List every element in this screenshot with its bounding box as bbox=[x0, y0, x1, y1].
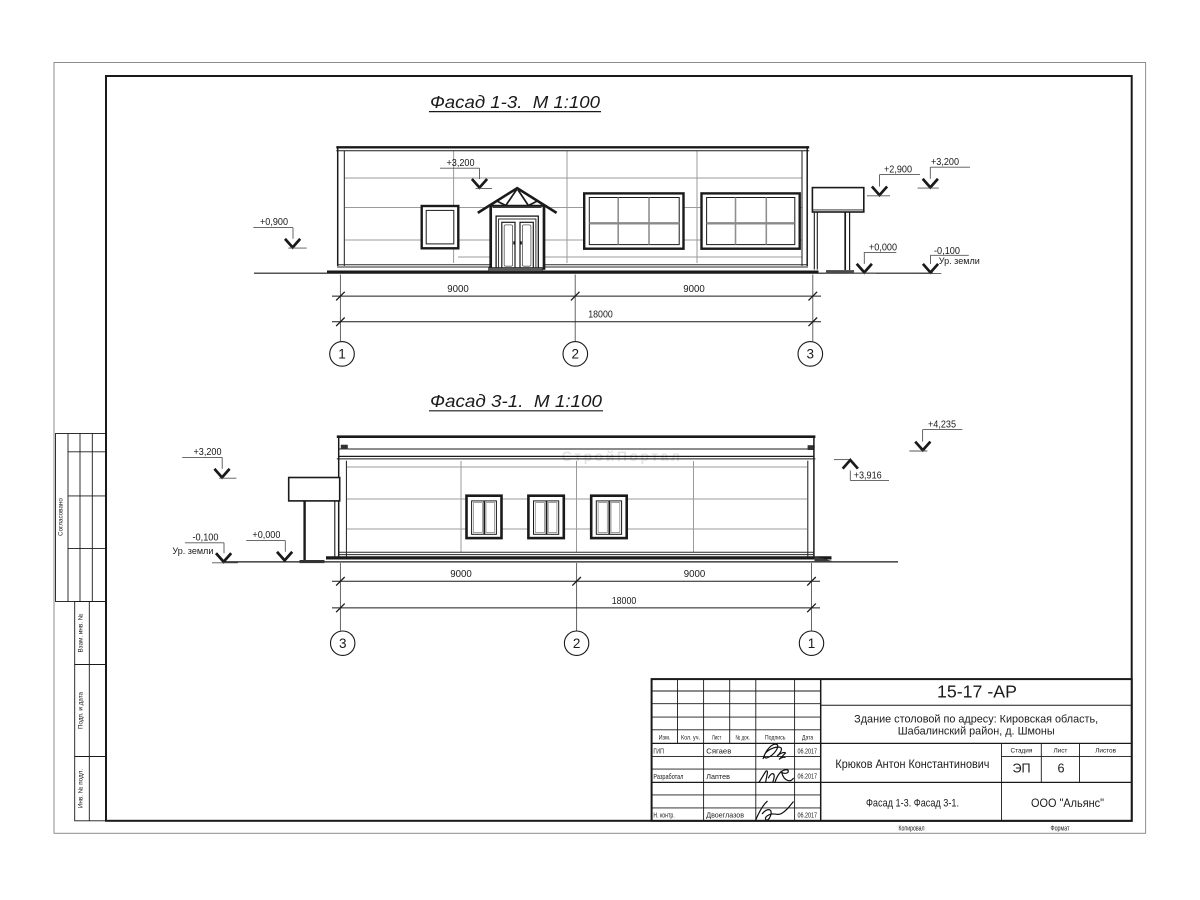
svg-text:9000: 9000 bbox=[450, 569, 472, 580]
svg-text:Фасад 1-3. М 1:100: Фасад 1-3. М 1:100 bbox=[430, 92, 600, 112]
svg-text:15-17 -АР: 15-17 -АР bbox=[937, 682, 1017, 702]
svg-text:Копировал: Копировал bbox=[899, 825, 925, 832]
svg-text:Дата: Дата bbox=[802, 735, 813, 742]
svg-text:3: 3 bbox=[339, 636, 347, 651]
svg-text:№ док.: № док. bbox=[736, 735, 750, 742]
svg-text:ООО "Альянс": ООО "Альянс" bbox=[1031, 796, 1104, 810]
svg-text:2: 2 bbox=[572, 347, 580, 362]
svg-text:1: 1 bbox=[338, 347, 346, 362]
svg-text:Двоеглазов: Двоеглазов bbox=[706, 811, 744, 820]
svg-text:Изм.: Изм. bbox=[659, 735, 671, 742]
svg-text:Разработал: Разработал bbox=[653, 772, 683, 781]
svg-text:Взам. инв. №: Взам. инв. № bbox=[78, 613, 85, 652]
svg-text:-0,100: -0,100 bbox=[193, 533, 219, 544]
svg-text:Листов: Листов bbox=[1095, 748, 1116, 755]
svg-text:Шабалинский район, д. Шмоны: Шабалинский район, д. Шмоны bbox=[898, 725, 1055, 737]
svg-text:Фасад 3-1. М 1:100: Фасад 3-1. М 1:100 bbox=[430, 391, 602, 411]
svg-text:+0,000: +0,000 bbox=[252, 530, 280, 541]
svg-text:Лаптев: Лаптев bbox=[706, 772, 730, 781]
svg-text:+3,200: +3,200 bbox=[931, 157, 959, 168]
svg-text:Лист: Лист bbox=[1053, 748, 1067, 755]
svg-text:Подп. и дата: Подп. и дата bbox=[78, 691, 85, 729]
svg-text:ЭП: ЭП bbox=[1012, 762, 1030, 776]
svg-text:9000: 9000 bbox=[447, 284, 469, 295]
svg-text:+3,200: +3,200 bbox=[194, 447, 222, 458]
svg-text:ГИП: ГИП bbox=[653, 747, 664, 756]
svg-text:+0,900: +0,900 bbox=[260, 217, 288, 228]
svg-text:+3,200: +3,200 bbox=[447, 158, 475, 169]
svg-text:1: 1 bbox=[808, 636, 816, 651]
svg-text:+4,235: +4,235 bbox=[928, 420, 956, 431]
svg-text:Формат: Формат bbox=[1051, 825, 1071, 832]
svg-text:9000: 9000 bbox=[684, 569, 706, 580]
svg-text:2: 2 bbox=[573, 636, 581, 651]
svg-text:18000: 18000 bbox=[612, 596, 637, 607]
svg-text:06.2017: 06.2017 bbox=[798, 774, 818, 781]
svg-text:Фасад 1-3. Фасад 3-1.: Фасад 1-3. Фасад 3-1. bbox=[866, 798, 959, 810]
svg-text:06.2017: 06.2017 bbox=[798, 813, 818, 820]
svg-text:Ур. земли: Ур. земли bbox=[939, 256, 980, 266]
svg-text:Кол. уч.: Кол. уч. bbox=[681, 735, 700, 742]
svg-text:Стадия: Стадия bbox=[1011, 748, 1033, 755]
svg-text:+0,000: +0,000 bbox=[869, 243, 897, 254]
svg-text:06.2017: 06.2017 bbox=[798, 749, 818, 756]
svg-text:+2,900: +2,900 bbox=[884, 165, 912, 176]
svg-text:9000: 9000 bbox=[683, 284, 705, 295]
svg-text:Сягаев: Сягаев bbox=[706, 747, 731, 756]
svg-text:Лист: Лист bbox=[712, 735, 722, 742]
svg-text:Инв. № подл.: Инв. № подл. bbox=[78, 769, 85, 808]
svg-text:Н. контр.: Н. контр. bbox=[653, 811, 674, 820]
svg-text:Здание столовой по адресу: Кир: Здание столовой по адресу: Кировская обл… bbox=[854, 713, 1098, 725]
svg-text:18000: 18000 bbox=[588, 310, 613, 321]
svg-text:Крюков Антон Константинович: Крюков Антон Константинович bbox=[835, 757, 989, 771]
svg-text:Согласовано: Согласовано bbox=[58, 498, 65, 536]
svg-text:Подпись: Подпись bbox=[765, 735, 786, 742]
svg-text:3: 3 bbox=[807, 347, 815, 362]
svg-text:6: 6 bbox=[1057, 762, 1064, 776]
svg-text:Ур. земли: Ур. земли bbox=[172, 546, 213, 556]
